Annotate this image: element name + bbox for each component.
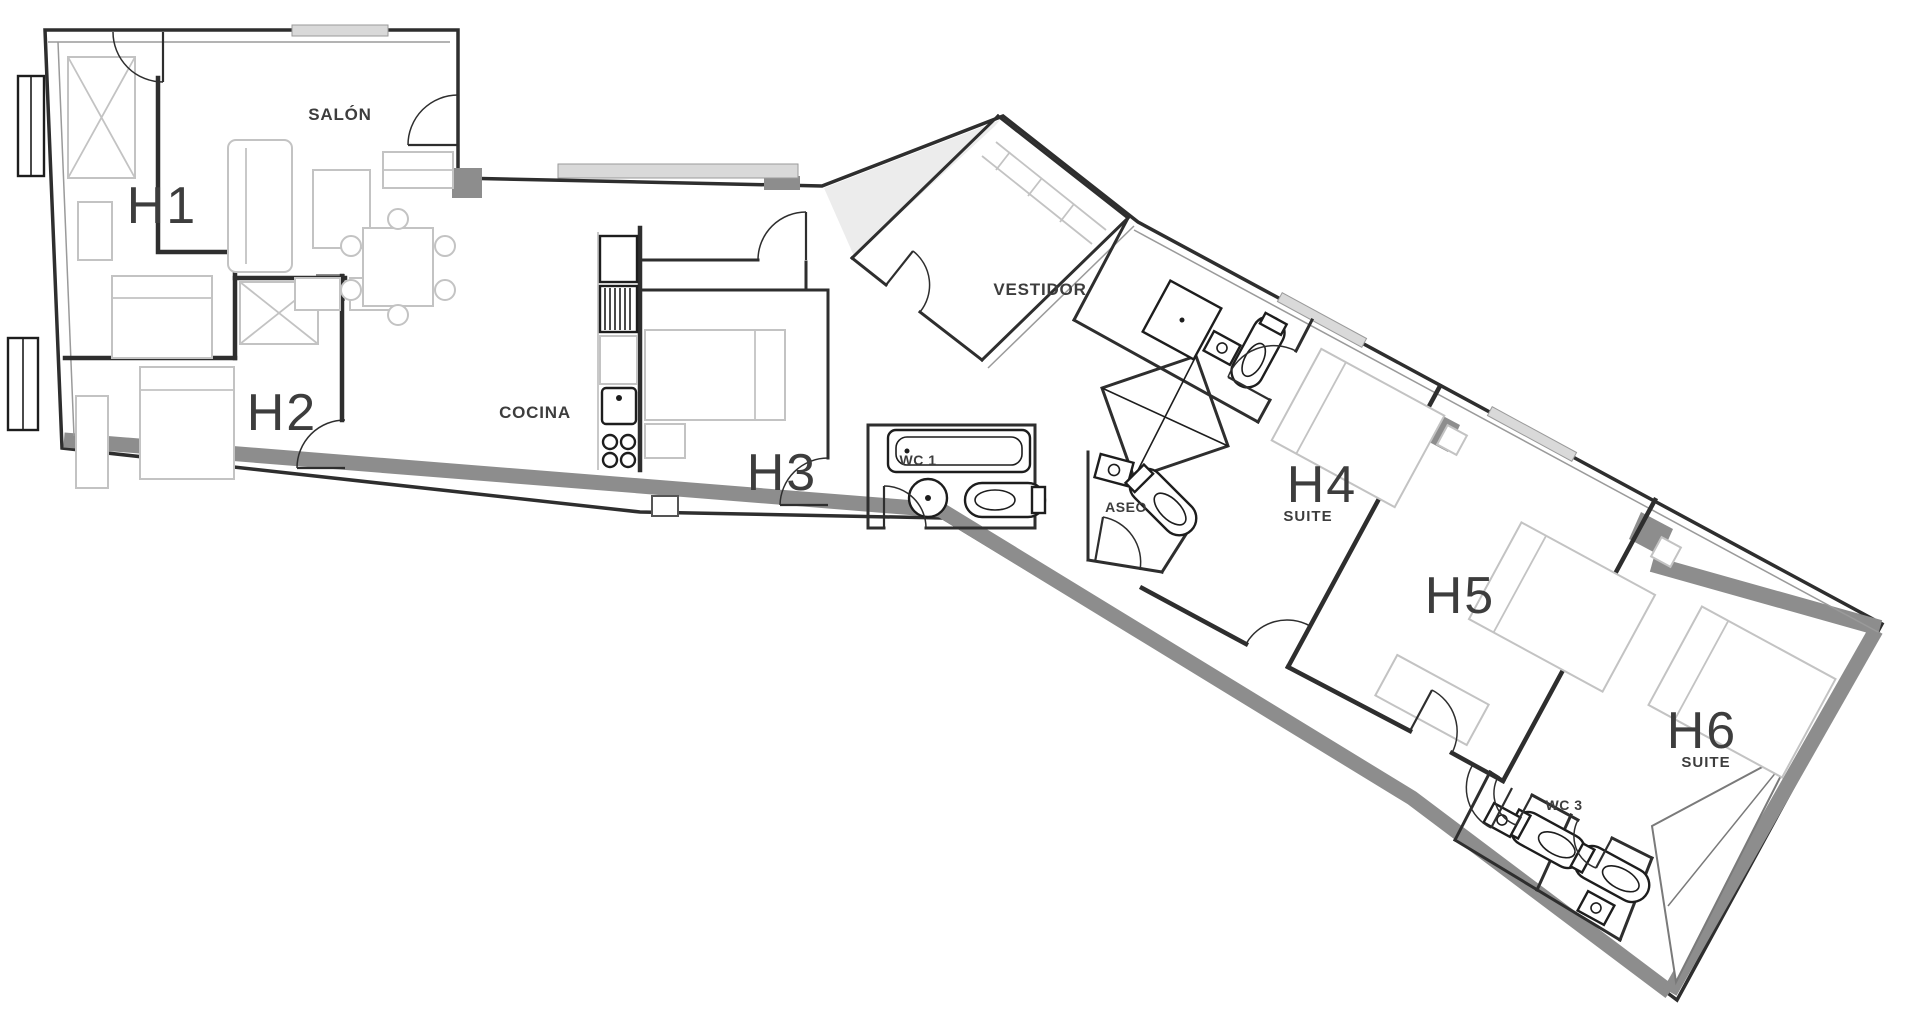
room-label-h2: H2 (247, 384, 317, 442)
wall-niche (652, 496, 678, 516)
room-label-vestidor: VESTIDOR (993, 280, 1086, 299)
cabinet (600, 336, 637, 384)
room-label-h5: H5 (1425, 567, 1495, 625)
bed (645, 330, 785, 420)
floor-plan-svg: H1 SALÓN H2 COCINA H3 WC 1 VESTIDOR ASEO… (0, 0, 1920, 1013)
desk (78, 202, 112, 260)
bed (112, 276, 212, 358)
room-label-h6-suite: SUITE (1681, 754, 1730, 771)
sofa (228, 140, 292, 272)
room-label-h4-suite: SUITE (1283, 508, 1332, 525)
oven-icon (600, 286, 637, 332)
sideboard (383, 152, 453, 188)
room-label-wc3: WC 3 (1546, 797, 1583, 813)
sink-icon (602, 388, 636, 424)
side-table (295, 278, 340, 310)
nightstand (645, 424, 685, 458)
window (292, 25, 388, 36)
shower-tray-icon (909, 479, 947, 517)
room-label-h3: H3 (747, 444, 817, 502)
room-label-wc1: WC 1 (900, 452, 937, 468)
window (558, 164, 798, 178)
floor-plan-page: H1 SALÓN H2 COCINA H3 WC 1 VESTIDOR ASEO… (0, 0, 1920, 1013)
fridge-icon (600, 236, 637, 282)
room-label-salon: SALÓN (308, 105, 372, 124)
room-label-aseo: ASEO (1105, 499, 1147, 515)
toilet-icon (965, 483, 1045, 517)
room-label-cocina: COCINA (499, 403, 571, 422)
room-label-h6: H6 (1667, 702, 1737, 760)
wardrobe-icon (68, 57, 135, 178)
room-label-h1: H1 (127, 177, 197, 235)
room-label-h4: H4 (1287, 456, 1357, 514)
coffee-table (313, 170, 370, 248)
bed (140, 367, 234, 479)
wardrobe (76, 396, 108, 488)
